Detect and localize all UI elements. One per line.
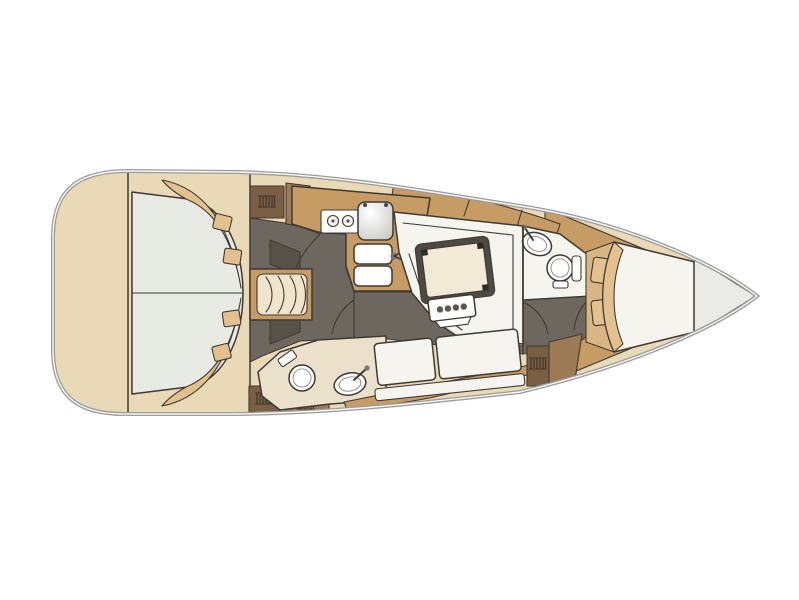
berth-pillow [212,343,232,362]
berth-pillow [212,213,232,232]
table-corner [482,284,489,291]
sink-hinge [363,203,367,207]
lower-settee-cushion [436,329,522,379]
forward-washbasin-knob [521,224,526,229]
aft-washbasin-knob [364,365,369,370]
yacht-layout-diagram [0,0,799,600]
bow-locker [694,257,756,335]
saloon-table-top [421,242,488,297]
lower-settee-cushion [374,338,436,386]
double-sink-bowl [354,266,392,286]
hanging-locker-aft-top [250,186,284,218]
berth-pillow [223,248,242,265]
yacht-layout-page [0,0,799,600]
stove-burner-dot [331,219,334,222]
companionway-steps [257,274,307,315]
sink-hinge [384,203,388,207]
table-corner [477,242,484,249]
table-corner [421,249,428,256]
double-sink-bowl [354,244,392,264]
forward-toilet-tank [572,256,581,281]
forward-toilet-seat [553,281,568,288]
berth-pillow [222,310,241,327]
galley-sink [358,202,393,240]
stove-burner-dot [346,219,349,222]
